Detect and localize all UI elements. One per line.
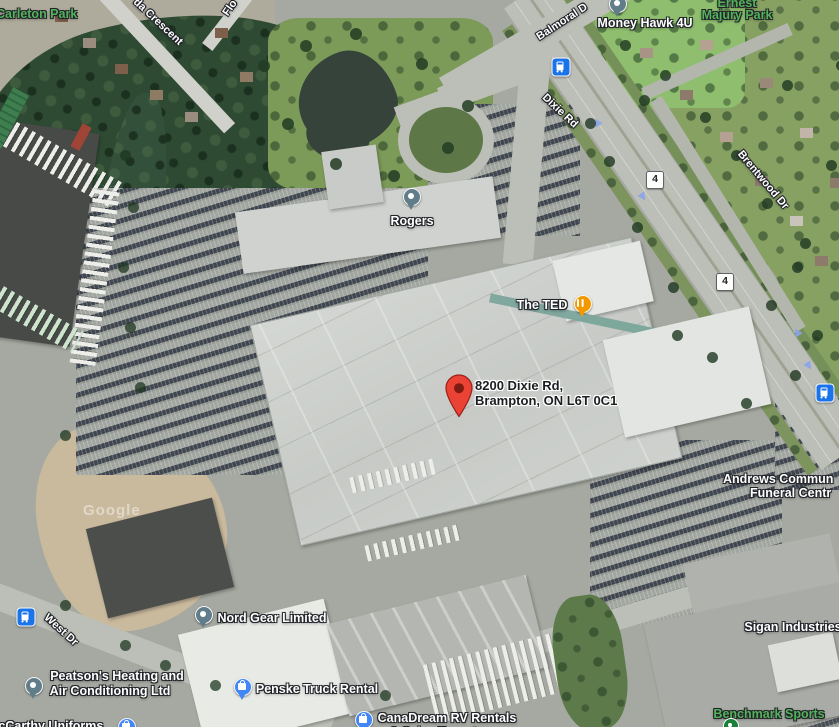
destination-pin[interactable] [444, 374, 474, 418]
bus-icon [821, 387, 828, 396]
trees-cluster-east [585, 118, 596, 129]
route-4-badge-north: 4 [646, 171, 664, 189]
poi-label-peatsons-line1[interactable]: Peatson's Heating and [50, 669, 184, 683]
houses-northeast [640, 48, 653, 58]
poi-label-the-ted[interactable]: The TED [517, 298, 568, 312]
roundabout [398, 96, 494, 184]
poi-label-mccarthy[interactable]: McCarthy Uniforms [0, 719, 103, 727]
poi-label-peatsons-line2[interactable]: Air Conditioning Ltd [50, 684, 171, 698]
transit-station-icon[interactable] [552, 58, 571, 77]
transit-station-icon[interactable] [17, 608, 36, 627]
restaurant-icon [577, 299, 579, 307]
trees-cluster-west [120, 150, 131, 161]
transit-station-icon[interactable] [816, 384, 835, 403]
poi-label-money-hawk[interactable]: Money Hawk 4U [597, 16, 692, 30]
poi-label-rogers[interactable]: Rogers [390, 214, 433, 228]
rogers-building-wing [321, 144, 384, 209]
poi-label-andrews-line1[interactable]: Andrews Commun [723, 472, 833, 486]
address-line-1: 8200 Dixie Rd, [475, 379, 617, 394]
destination-address-label[interactable]: 8200 Dixie Rd, Brampton, ON L6T 0C1 [475, 379, 617, 408]
shopping-bag-icon [122, 723, 130, 727]
pin-point [29, 692, 37, 699]
pin-point [407, 203, 415, 210]
poi-label-canadream-line1[interactable]: CanaDream RV Rentals [378, 711, 517, 725]
pin-dot [30, 682, 36, 688]
bus-icon [22, 611, 29, 620]
poi-label-andrews-line2[interactable]: Funeral Centr [750, 486, 831, 500]
park-label-carleton[interactable]: Carleton Park [0, 7, 77, 21]
pin-dot [614, 0, 620, 6]
bus-icon [557, 61, 564, 70]
pin-point [199, 621, 207, 628]
map-canvas[interactable]: Google da Crescent Flo Balmoral D Dixie … [0, 0, 839, 727]
poi-label-nord-gear[interactable]: Nord Gear Limited [217, 611, 326, 625]
route-4-badge-south: 4 [716, 273, 734, 291]
loading-dock-trailers-2 [364, 525, 460, 562]
park-label-ernest-line2[interactable]: Majury Park [702, 8, 773, 22]
pin-dot [408, 193, 414, 199]
trees-cluster-park [300, 40, 312, 52]
pin-point [238, 693, 246, 700]
pin-point [578, 310, 586, 317]
shopping-bag-icon [238, 683, 246, 690]
google-watermark: Google [83, 502, 141, 519]
address-line-2: Brampton, ON L6T 0C1 [475, 394, 617, 409]
poi-label-penske[interactable]: Penske Truck Rental [256, 682, 378, 696]
shopping-bag-icon [359, 716, 367, 723]
poi-label-sigan[interactable]: Sigan Industries [744, 620, 839, 634]
benchmark-sports-marker[interactable] [723, 718, 739, 727]
pin-dot [200, 611, 206, 617]
